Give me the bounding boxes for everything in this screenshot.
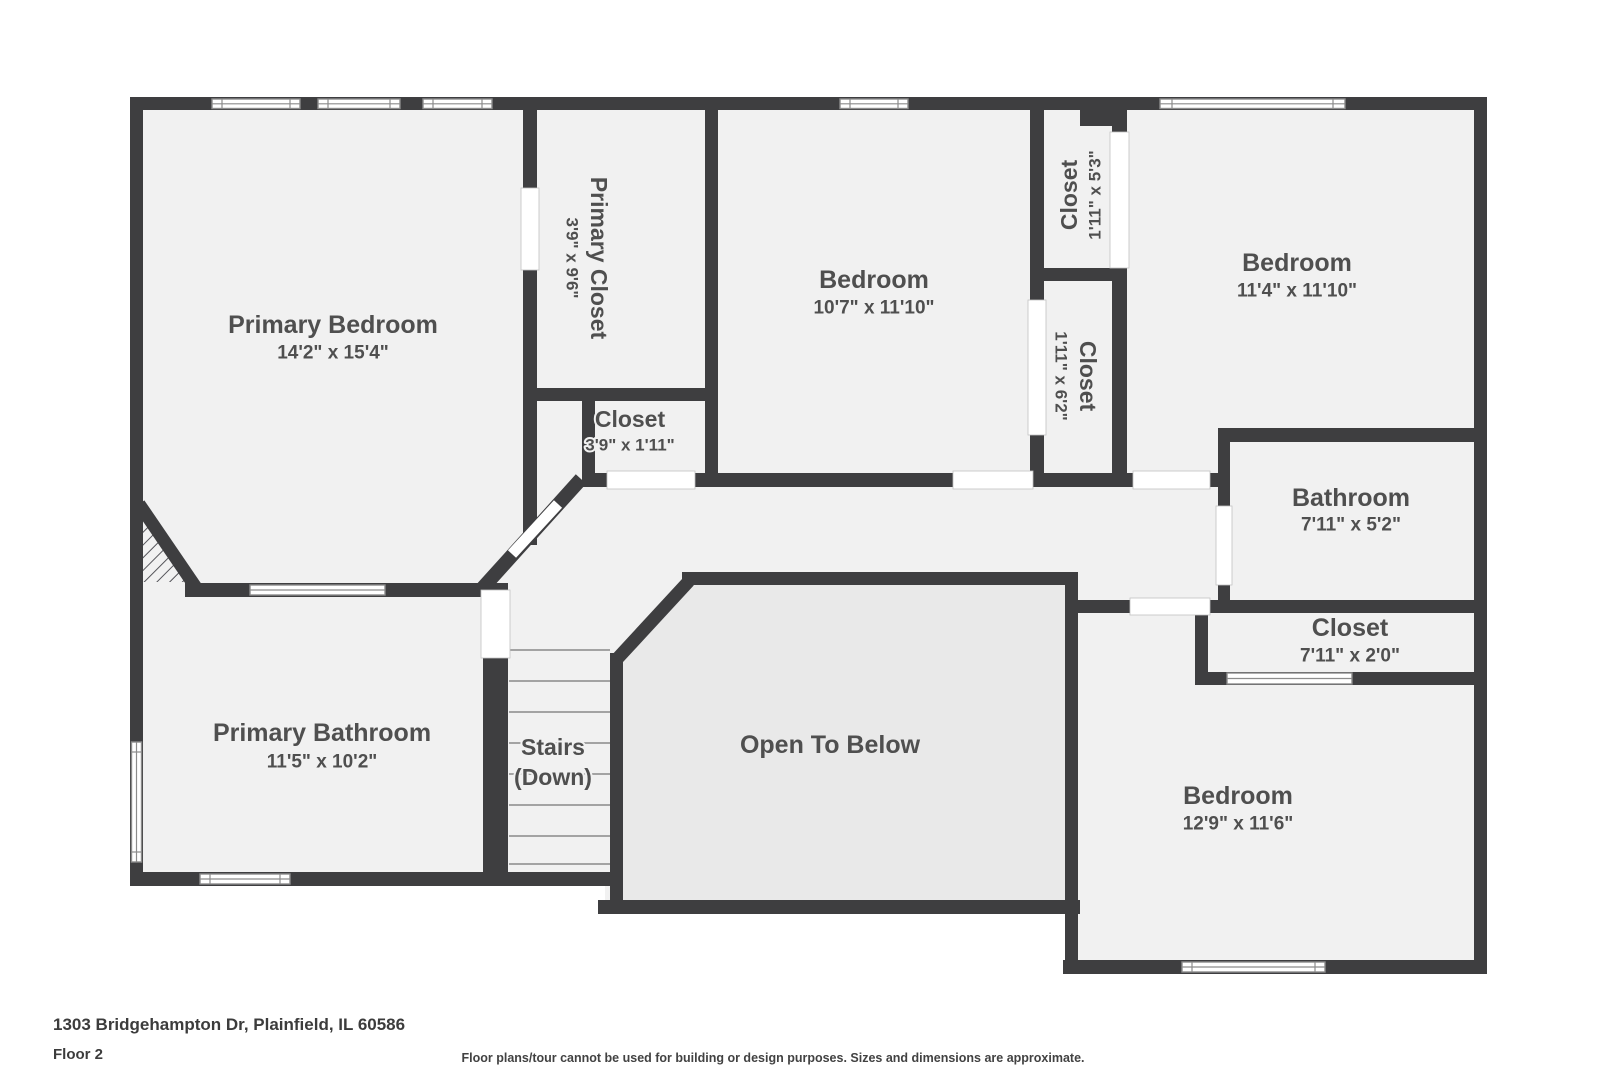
room-label-primary-bathroom: Primary Bathroom	[213, 719, 431, 747]
closet-opening	[1227, 673, 1352, 684]
room-dims-closet-hall: 3'9" x 1'11"	[585, 436, 674, 455]
room-dims-bedroom-middle: 10'7" x 11'10"	[813, 298, 934, 319]
disclaimer-text: Floor plans/tour cannot be used for buil…	[461, 1051, 1084, 1065]
window	[1182, 962, 1325, 972]
window	[212, 99, 300, 109]
window	[1160, 99, 1345, 109]
room-dims-closet-mid: 1'11" x 6'2"	[1052, 331, 1071, 420]
window	[250, 585, 385, 595]
open-to-below-label: Open To Below	[740, 731, 921, 759]
room-dims-closet-top: 1'11" x 5'3"	[1086, 150, 1105, 239]
room-label-bathroom: Bathroom	[1292, 484, 1410, 512]
room-label-primary-bedroom: Primary Bedroom	[228, 311, 438, 339]
room-label-closet-hall: Closet	[595, 406, 666, 432]
room-dims-bathroom: 7'11" x 5'2"	[1301, 515, 1401, 536]
floor-plan-page: { "colors":{"wall":"#3e3e40","floor":"#f…	[0, 0, 1621, 1080]
window	[200, 874, 290, 884]
room-label-bedroom-right: Bedroom	[1242, 249, 1352, 277]
floor-plan-canvas: Primary Bedroom 14'2" x 15'4" Primary Cl…	[0, 0, 1621, 1080]
room-label-bedroom-middle: Bedroom	[819, 266, 929, 294]
room-dims-closet-right: 7'11" x 2'0"	[1300, 646, 1400, 667]
window	[132, 742, 142, 862]
floor-label: Floor 2	[53, 1046, 103, 1063]
room-dims-primary-bedroom: 14'2" x 15'4"	[277, 343, 389, 364]
stairs-label-line1: Stairs	[521, 734, 585, 760]
room-label-primary-closet: Primary Closet	[586, 177, 612, 340]
room-label-closet-top: Closet	[1056, 160, 1082, 231]
window	[318, 99, 400, 109]
room-dims-primary-closet: 3'9" x 9'6"	[563, 218, 582, 299]
room-dims-bedroom-bottom: 12'9" x 11'6"	[1183, 814, 1294, 835]
room-label-closet-mid: Closet	[1075, 341, 1101, 412]
room-label-closet-right: Closet	[1312, 614, 1389, 642]
address-text: 1303 Bridgehampton Dr, Plainfield, IL 60…	[53, 1015, 405, 1035]
room-dims-bedroom-right: 11'4" x 11'10"	[1237, 281, 1357, 302]
stairs-label-line2: (Down)	[514, 764, 592, 790]
window	[840, 99, 908, 109]
room-label-bedroom-bottom: Bedroom	[1183, 782, 1293, 810]
window	[423, 99, 492, 109]
room-dims-primary-bathroom: 11'5" x 10'2"	[267, 752, 378, 773]
